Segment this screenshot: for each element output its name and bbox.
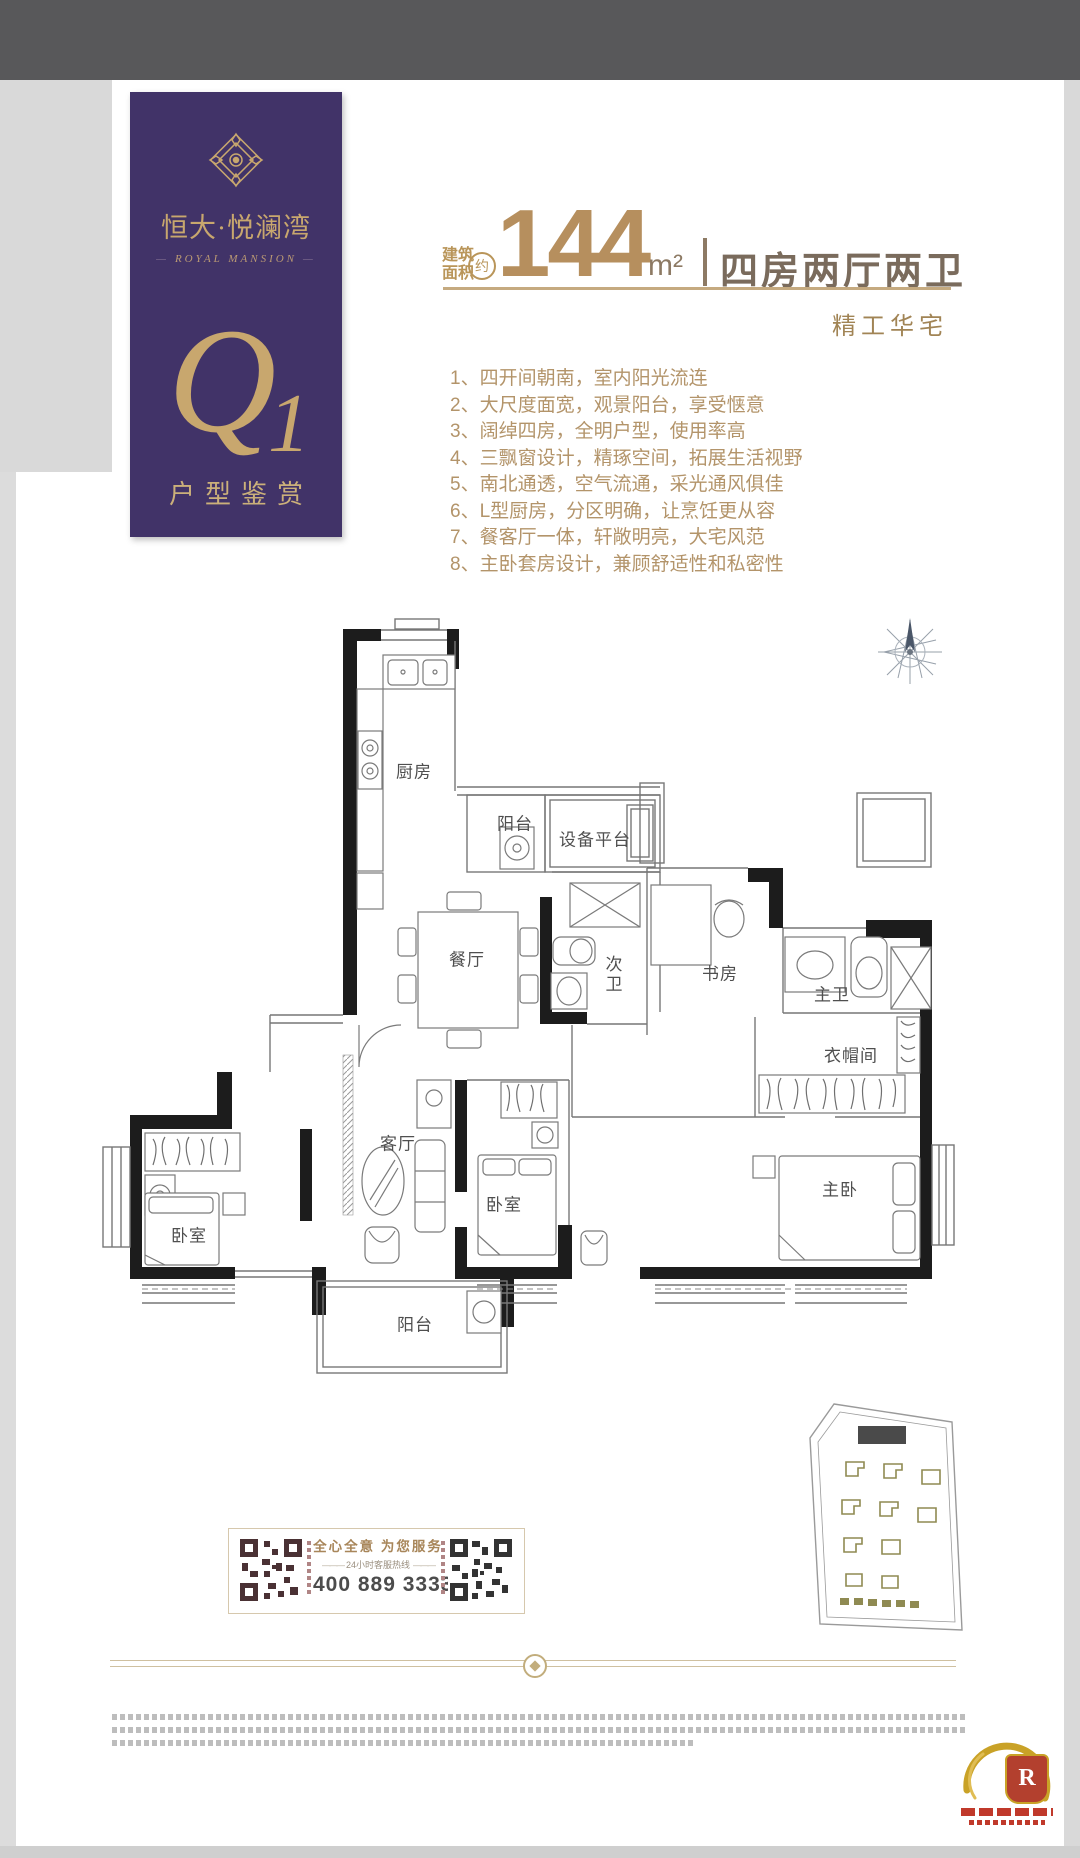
fine-print-line: [112, 1740, 694, 1746]
area-unit: m²: [648, 249, 683, 283]
room-label-living: 客厅: [380, 1130, 416, 1155]
room-label-study: 书房: [702, 960, 738, 985]
room-label-balcony-bottom: 阳台: [397, 1311, 433, 1336]
service-strip: 全心全意 为您服务 24小时客服热线 400 889 3333: [228, 1528, 525, 1614]
footer-divider: [110, 1658, 956, 1670]
hotline-label: 24小时客服热线: [313, 1558, 443, 1571]
room-label-balcony-top: 阳台: [497, 810, 533, 835]
photo-top-band: [0, 0, 1080, 80]
feature-item: 7、餐客厅一体，轩敞明亮，大宅风范: [450, 525, 870, 552]
feature-item: 4、三飘窗设计，精琢空间，拓展生活视野: [450, 446, 870, 473]
room-label-bedroom-left: 卧室: [171, 1222, 207, 1247]
brand-banner: 恒大·悦澜湾 ROYAL MANSION Q 1 户型鉴赏: [130, 92, 342, 537]
room-label-second-bath: 次卫: [600, 955, 625, 995]
brand-name: 恒大·悦澜湾: [130, 206, 342, 245]
qr-left-caption: [307, 1541, 311, 1597]
area-value: 144: [497, 196, 648, 292]
room-label-dining: 餐厅: [449, 946, 485, 971]
agency-name-text: [961, 1808, 1053, 1816]
qr-code-right: [448, 1537, 514, 1603]
legal-fine-print: [112, 1714, 968, 1753]
agency-logo-letter: R: [1005, 1754, 1049, 1804]
room-label-bedroom-mid: 卧室: [486, 1191, 522, 1216]
feature-list: 1、四开间朝南，室内阳光流连 2、大尺度面宽，观景阳台，享受惬意 3、阔绰四房，…: [450, 366, 870, 578]
hotline-number: 400 889 3333: [313, 1573, 443, 1597]
headline-underline: [443, 287, 951, 290]
brand-name-en: ROYAL MANSION: [130, 253, 342, 265]
agency-logo: R: [953, 1728, 1065, 1828]
approx-badge: 约: [468, 252, 496, 280]
highlighted-building: [858, 1426, 906, 1444]
divider-medallion-icon: [523, 1654, 547, 1678]
qr-code-left: [238, 1537, 304, 1603]
headline-divider: [703, 238, 707, 286]
banner-caption: 户型鉴赏: [130, 474, 342, 511]
feature-item: 2、大尺度面宽，观景阳台，享受惬意: [450, 393, 870, 420]
building-footprints: [842, 1462, 940, 1588]
photo-bottom-edge: [0, 1846, 1080, 1858]
brand-ornament-icon: [204, 128, 268, 192]
room-label-equipment-platform: 设备平台: [559, 826, 631, 851]
room-label-master-bath: 主卫: [814, 981, 850, 1006]
qr-right-caption: [441, 1541, 445, 1597]
feature-item: 1、四开间朝南，室内阳光流连: [450, 366, 870, 393]
tagline: 精工华宅: [648, 306, 948, 341]
site-key-plan: [806, 1392, 974, 1642]
site-small-units: [840, 1598, 919, 1608]
agency-subtext: [969, 1820, 1045, 1825]
feature-item: 8、主卧套房设计，兼顾舒适性和私密性: [450, 552, 870, 579]
room-label-cloakroom: 衣帽间: [824, 1042, 878, 1067]
feature-item: 3、阔绰四房，全明户型，使用率高: [450, 419, 870, 446]
unit-code: Q 1: [130, 320, 342, 470]
photo-left-edge: [0, 472, 16, 1858]
fine-print-line: [112, 1714, 968, 1720]
room-label-master-bedroom: 主卧: [822, 1176, 858, 1201]
photo-right-edge: [1064, 80, 1080, 1858]
partition-hatch: [343, 1055, 353, 1215]
unit-code-1: 1: [268, 382, 310, 466]
unit-code-q: Q: [168, 306, 276, 456]
feature-item: 5、南北通透，空气流通，采光通风俱佳: [450, 472, 870, 499]
fine-print-line: [112, 1727, 968, 1733]
photo-left-margin: [0, 80, 112, 472]
service-slogan: 全心全意 为您服务: [313, 1535, 443, 1555]
feature-item: 6、L型厨房，分区明确，让烹饪更从容: [450, 499, 870, 526]
room-label-kitchen: 厨房: [396, 758, 432, 783]
